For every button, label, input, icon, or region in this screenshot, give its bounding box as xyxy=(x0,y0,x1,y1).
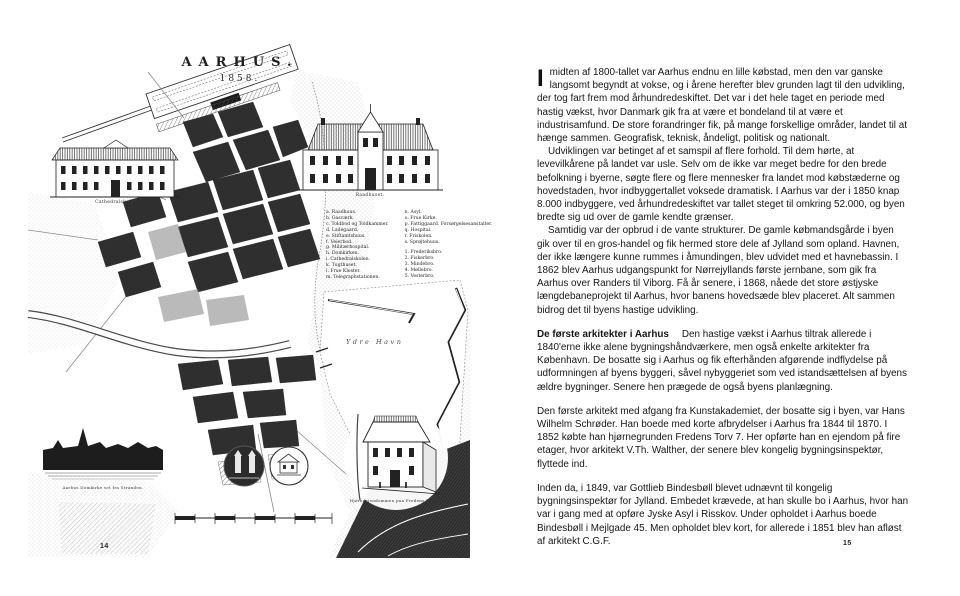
paragraph-1: Imidten af 1800-tallet var Aarhus endnu … xyxy=(537,66,909,145)
map-year: 1858. xyxy=(122,74,358,84)
legend-column-1: a. Raadhuus.b. Gasværk.c. Toldbod og Tol… xyxy=(326,210,389,281)
paragraph-1-text: midten af 1800-tallet var Aarhus endnu e… xyxy=(537,67,907,144)
caption-townhall: Raadhuset. xyxy=(302,193,438,198)
aarhus-1858-map-artwork xyxy=(28,42,470,558)
map-title: AARHUS. xyxy=(122,55,358,70)
paragraph-2: Udviklingen var betinget af et samspil a… xyxy=(537,145,909,224)
caption-panorama: Aarhus Domkirke set fra Stranden. xyxy=(40,485,166,490)
legend-entry: c. Toldbod og Toldkammer. xyxy=(326,222,389,228)
section-heading: De første arkitekter i Aarhus xyxy=(537,329,669,340)
historic-city-map: AARHUS. 1858. a. Raadhuus.b. Gasværk.c. … xyxy=(28,42,470,558)
harbor-label: Ydre Havn xyxy=(346,338,456,346)
left-page: AARHUS. 1858. a. Raadhuus.b. Gasværk.c. … xyxy=(0,0,480,596)
seal-medallion-dark xyxy=(224,446,264,486)
page-number-right: 15 xyxy=(843,540,852,547)
paragraph-3: Samtidig var der opbrud i de vante struk… xyxy=(537,224,909,316)
book-spread: AARHUS. 1858. a. Raadhuus.b. Gasværk.c. … xyxy=(0,0,960,596)
caption-corner-house: Hjørneejendommen paa Fredens Torv. V.Th. xyxy=(342,498,458,503)
map-legend: a. Raadhuus.b. Gasværk.c. Toldbod og Tol… xyxy=(326,210,492,281)
paragraph-6: Inden da, i 1849, var Gottlieb Bindesbøl… xyxy=(537,482,909,548)
body-text-column: Imidten af 1800-tallet var Aarhus endnu … xyxy=(537,66,909,548)
map-scale-bar xyxy=(175,513,332,524)
paragraph-5: Den første arkitekt med afgang fra Kunst… xyxy=(537,405,909,471)
paragraph-4: De første arkitekter i AarhusDen hastige… xyxy=(537,328,909,394)
seal-medallion-light xyxy=(270,447,308,485)
school-elevation-drawing xyxy=(50,140,180,197)
caption-school: Cathedralskolen. xyxy=(52,200,182,205)
city-panorama-drawing xyxy=(43,428,163,479)
legend-entry: m. Telegraphstationen. xyxy=(326,275,389,281)
drop-cap: I xyxy=(537,67,544,90)
page-number-left: 14 xyxy=(100,543,109,550)
